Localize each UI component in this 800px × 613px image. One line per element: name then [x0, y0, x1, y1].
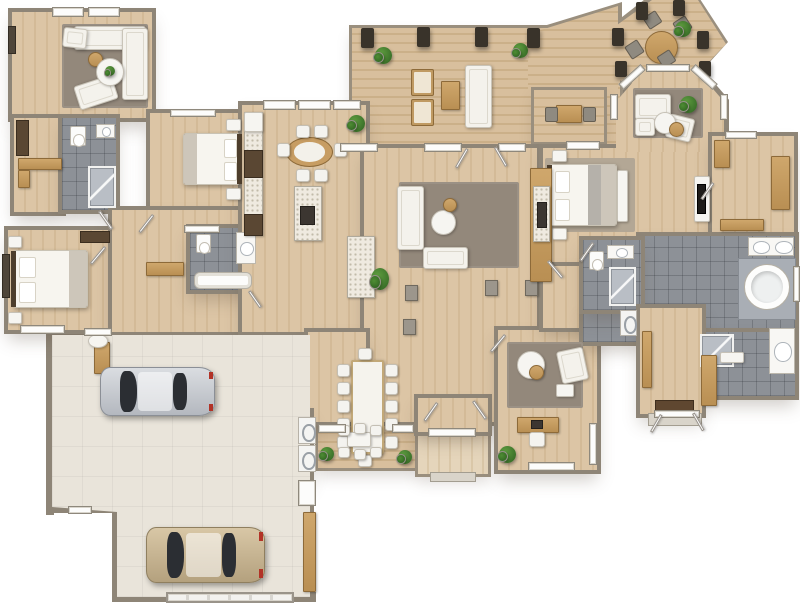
pillow — [224, 139, 237, 158]
window-bath-2-top — [184, 225, 220, 233]
bench-closet-left-a — [18, 158, 62, 170]
nightstand-b1-top — [226, 119, 241, 131]
cushion — [639, 122, 651, 132]
cushion — [401, 190, 420, 246]
cushion — [126, 32, 144, 96]
pillow — [19, 257, 36, 278]
vanity-master-e — [769, 328, 795, 374]
closet-master-bench-e — [771, 156, 790, 210]
nightstand-m-top — [552, 150, 567, 162]
plant-leaf — [678, 101, 689, 112]
window-sitting-top-2 — [88, 7, 120, 17]
deck-post-8 — [697, 31, 709, 49]
sink-basin — [616, 248, 628, 258]
sectional-sitting-side — [122, 28, 148, 100]
desk-chair — [529, 432, 545, 447]
window-bedroom-3-s — [528, 462, 575, 471]
car-champagne — [146, 527, 265, 583]
taillight — [209, 404, 213, 412]
bottom-deck-chair-5 — [354, 449, 366, 460]
rear-glass — [173, 373, 187, 411]
windshield — [120, 371, 137, 411]
deck-post-5 — [636, 2, 648, 20]
sink-basin — [774, 342, 791, 362]
bottom-deck-chair-3 — [370, 425, 382, 436]
breakfast-chair-1 — [296, 125, 310, 138]
deck-connector — [528, 0, 618, 92]
plant-leaf — [369, 275, 381, 289]
pillow — [224, 162, 237, 181]
shower-bath-1 — [88, 166, 116, 208]
window-bedroom-2-left — [2, 254, 10, 298]
cushion — [469, 69, 488, 124]
appliance-door — [302, 452, 316, 470]
side-deck-chair-1 — [545, 107, 558, 122]
appliance-door — [624, 316, 637, 333]
pillow — [19, 282, 36, 303]
window-sitting-top-1 — [52, 7, 84, 17]
side-table-nook — [669, 122, 684, 137]
taillight — [209, 372, 213, 380]
toilet-bath-2 — [196, 234, 211, 253]
door-bath-1 — [98, 210, 113, 230]
closet-master-unit-n — [714, 140, 730, 168]
step-entry-south — [430, 472, 476, 482]
bottom-deck-chair-4 — [338, 447, 350, 458]
dining-chair-r2 — [385, 382, 398, 395]
sofa-living — [397, 186, 424, 250]
closet-master-shelf-s — [720, 219, 764, 231]
tub-basin — [751, 271, 783, 303]
vanity-master-n — [748, 237, 794, 256]
vanity-powder — [607, 245, 634, 259]
headboard-right — [237, 134, 242, 184]
entry-east-bench — [701, 355, 717, 406]
garage-door — [166, 592, 294, 603]
shelf-closet-left — [16, 120, 29, 156]
window-bedroom-1-top — [170, 109, 216, 117]
fridge-kitchen — [244, 112, 263, 132]
window-great-2 — [424, 143, 462, 152]
dining-chair-l2 — [337, 382, 350, 395]
plant-leaf — [497, 451, 508, 462]
plant-living — [371, 268, 389, 290]
window-nook-e — [720, 94, 728, 120]
toilet-bowl — [73, 134, 85, 146]
breakfast-chair-3 — [296, 169, 310, 182]
bench-master-bath — [720, 352, 744, 363]
plant-nook — [680, 96, 697, 113]
plant-kitchen — [348, 115, 365, 132]
plant-deck-main-1 — [375, 47, 392, 64]
window-tub-east — [793, 266, 800, 302]
toilet-powder — [589, 251, 604, 270]
plant-leaf — [104, 69, 112, 77]
column-4 — [525, 280, 538, 296]
loveseat-living — [423, 247, 468, 269]
coffee-table-living — [431, 210, 456, 235]
deck-coffee-table — [441, 81, 460, 110]
window-kitchen-1 — [263, 100, 296, 110]
plant-deck-main-2 — [513, 43, 528, 58]
dining-chair-r3 — [385, 400, 398, 413]
plant-bottom-deck-1 — [320, 447, 334, 461]
car-roof — [138, 372, 172, 411]
deck-armchair-1 — [411, 69, 434, 96]
window-nook-top — [646, 64, 690, 72]
duvet-fold — [600, 165, 616, 225]
shower-glass — [611, 269, 634, 304]
window-south-1 — [318, 424, 346, 433]
window-closet-n — [725, 131, 757, 139]
car-roof — [186, 533, 221, 577]
plant-leaf — [318, 451, 328, 461]
bench-closet-left-b — [18, 170, 30, 188]
table-top — [294, 142, 326, 162]
taillight — [259, 569, 263, 578]
door-garage-side — [298, 480, 316, 506]
taillight — [259, 532, 263, 541]
window-south-2 — [392, 424, 414, 433]
plant-bottom-deck-2 — [398, 450, 412, 464]
side-table-living — [443, 198, 457, 212]
window-nook-w — [610, 94, 618, 120]
plant-coffee-table — [105, 66, 115, 76]
entry-east-closet — [642, 331, 652, 388]
deck-post-7 — [612, 28, 624, 46]
cabinet-kitchen-a — [244, 150, 263, 178]
cushion — [66, 31, 83, 45]
sink-basin — [102, 127, 111, 137]
bench-master — [617, 170, 628, 222]
nightstand-b2-bottom — [8, 312, 22, 324]
column-1 — [405, 285, 418, 301]
window-master-n — [566, 141, 600, 150]
dryer — [298, 445, 316, 472]
sink-basin — [753, 241, 771, 254]
window-sitting-left — [8, 26, 16, 54]
nightstand-b1-bottom — [226, 188, 241, 200]
dining-chair-l3 — [337, 400, 350, 413]
car-silver — [100, 367, 215, 416]
tray-table-bedroom-3 — [529, 365, 544, 380]
window-great-3 — [498, 143, 526, 152]
vanity-bath-2 — [236, 232, 256, 264]
bed-bedroom-1 — [183, 133, 240, 185]
plant-leaf — [673, 26, 684, 37]
window-great-1 — [340, 143, 378, 152]
side-deck-chair-2 — [583, 107, 596, 122]
window-kitchen-2 — [298, 100, 331, 110]
breakfast-chair-4 — [314, 169, 328, 182]
laptop — [531, 420, 543, 429]
cushion — [414, 102, 431, 123]
bottom-deck-chair-6 — [370, 447, 382, 458]
kitchen-buffet — [347, 236, 375, 298]
sink-basin — [775, 241, 793, 254]
dining-chair-r1 — [385, 364, 398, 377]
ottoman-bedroom-3 — [556, 384, 574, 397]
plant-bedroom-3 — [499, 446, 516, 463]
nightstand-b2-top — [8, 236, 22, 248]
nightstand-m-bottom — [552, 228, 567, 240]
floor-plan-3d-render — [0, 0, 800, 613]
dining-chair-l1 — [337, 364, 350, 377]
breakfast-chair-5 — [277, 143, 290, 157]
accent-chair-sitting — [62, 27, 88, 49]
plant-leaf — [373, 52, 384, 63]
bed-bedroom-2 — [13, 250, 88, 308]
pillow — [555, 199, 570, 221]
toilet-bowl — [199, 242, 210, 254]
dining-chair-top — [358, 348, 372, 360]
dining-chair-r5 — [385, 436, 398, 449]
garage-workbench — [303, 512, 316, 592]
windshield — [167, 532, 185, 578]
cushion — [414, 72, 431, 93]
deck-post-3 — [475, 27, 488, 47]
bottom-deck-table — [347, 432, 371, 447]
deck-armchair-2 — [411, 99, 434, 126]
breakfast-table — [286, 137, 333, 167]
side-deck-table — [556, 105, 582, 123]
appliance-door — [302, 424, 316, 442]
plant-deck-right — [675, 21, 691, 37]
deck-post-1 — [361, 28, 374, 48]
plant-leaf — [511, 48, 521, 58]
deck-post-9 — [615, 61, 627, 77]
cushion — [427, 251, 464, 265]
console-hall-left — [146, 262, 184, 276]
rear-glass — [222, 533, 236, 576]
door-garage-house — [84, 328, 112, 336]
dresser-bedroom-2 — [80, 231, 110, 243]
window-bedroom-2-bottom — [20, 325, 65, 334]
breakfast-chair-2 — [314, 125, 328, 138]
window-garage-step — [68, 506, 92, 514]
deck-sofa — [465, 65, 492, 128]
shower-glass — [90, 168, 114, 206]
plant-leaf — [396, 454, 406, 464]
firebox — [537, 202, 547, 228]
garage-entry-mat — [88, 334, 108, 348]
column-3 — [485, 280, 498, 296]
settee-nook-chaise — [635, 118, 655, 136]
shower-powder — [609, 267, 636, 306]
duvet-fold — [184, 134, 197, 184]
toilet-bowl — [592, 259, 603, 271]
sink-basin — [240, 242, 254, 256]
deck-post-2 — [417, 27, 430, 47]
deck-post-6 — [673, 0, 685, 16]
window-kitchen-3 — [333, 100, 361, 110]
stacked-washer — [620, 310, 637, 336]
bottom-deck-chair-2 — [354, 423, 366, 434]
toilet-bath-1 — [70, 126, 86, 146]
column-2 — [403, 319, 416, 335]
tub-master — [744, 264, 790, 310]
throw-blanket — [588, 165, 601, 225]
door-sill-entry-south — [428, 428, 476, 437]
pillow — [555, 171, 570, 193]
washer — [298, 417, 316, 444]
window-bedroom-3-e — [589, 423, 597, 465]
vanity-bath-1 — [96, 124, 115, 138]
duvet-fold — [69, 251, 87, 307]
tub-bath-2 — [194, 272, 252, 289]
plant-leaf — [346, 120, 357, 131]
cooktop — [300, 206, 315, 225]
cabinet-kitchen-b — [244, 214, 263, 236]
cushion — [561, 351, 585, 379]
headboard-left — [11, 251, 16, 307]
deck-post-4 — [527, 28, 540, 48]
bed-master — [549, 164, 617, 226]
